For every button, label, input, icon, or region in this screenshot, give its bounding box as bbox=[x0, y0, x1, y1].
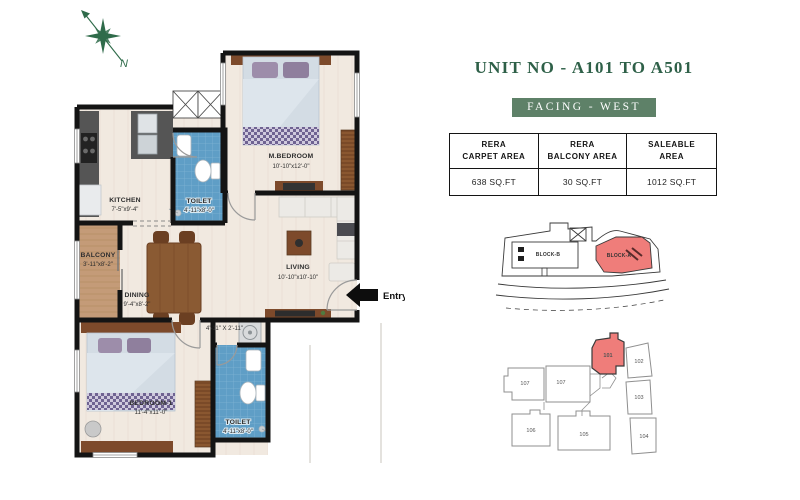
room-dims-balcony: 3'-11"x8'-2" bbox=[83, 262, 113, 268]
unit-107-mid-label: 107 bbox=[556, 380, 565, 386]
room-label-toilet-1: TOILET bbox=[186, 198, 212, 205]
room-label-toilet-2: TOILET bbox=[225, 419, 251, 426]
wardrobe-icon bbox=[195, 381, 212, 447]
facing-badge-wrap: FACING - WEST bbox=[448, 98, 720, 117]
table-header-rera-carpet: RERA CARPET AREA bbox=[450, 134, 539, 169]
table-value-balcony-area: 30 SQ.FT bbox=[539, 169, 628, 195]
block-a-label: BLOCK-A bbox=[607, 253, 632, 259]
room-dims-toilet-2: 4'-11"x8'-0" bbox=[223, 429, 253, 435]
wc-icon bbox=[240, 382, 256, 404]
shaft-icon bbox=[173, 91, 223, 118]
floor-plan: KITCHEN 7'-5"x9'-4" TOILET 4'-11"x8'-0" … bbox=[65, 45, 405, 465]
area-table: RERA CARPET AREA RERA BALCONY AREA SALEA… bbox=[449, 133, 717, 196]
unit-title: UNIT NO - A101 TO A501 bbox=[448, 58, 720, 78]
table-header-saleable: SALEABLE AREA bbox=[627, 134, 716, 169]
room-dims-kitchen: 7'-5"x9'-4" bbox=[112, 207, 139, 213]
dining-furniture bbox=[147, 231, 201, 325]
room-label-bedroom-1: BEDROOM-1 bbox=[129, 400, 172, 407]
unit-103-label: 103 bbox=[634, 395, 643, 401]
fridge-icon bbox=[79, 185, 101, 215]
room-dims-master-bedroom: 10'-10"x12'-0" bbox=[273, 164, 310, 170]
key-plan: 101 102 103 104 105 106 107 107 bbox=[498, 326, 678, 462]
unit-101-label: 101 bbox=[603, 353, 612, 359]
sink-icon bbox=[138, 114, 157, 133]
unit-105-shape bbox=[558, 411, 610, 450]
room-label-master-bedroom: M.BEDROOM bbox=[269, 153, 314, 160]
site-map: BLOCK-B BLOCK-A bbox=[492, 216, 672, 320]
washbasin-icon bbox=[246, 350, 261, 371]
room-dims-living: 10'-10"x10'-10" bbox=[278, 275, 318, 281]
passage-dims: 4'-11" X 2'-11" bbox=[206, 326, 243, 332]
unit-107-left-label: 107 bbox=[520, 381, 529, 387]
unit-106-label: 106 bbox=[526, 428, 535, 434]
room-dims-dining: 9'-4"x8'-2" bbox=[124, 302, 151, 308]
room-dims-toilet-1: 4'-11"x8'-0" bbox=[184, 208, 214, 214]
planter-icon bbox=[85, 421, 101, 437]
unit-107-mid-shape bbox=[546, 366, 590, 402]
wc-icon bbox=[195, 160, 211, 182]
table-header-rera-balcony: RERA BALCONY AREA bbox=[539, 134, 628, 169]
floor-plan-page: N bbox=[0, 0, 800, 500]
facing-badge: FACING - WEST bbox=[512, 98, 656, 117]
block-b-label: BLOCK-B bbox=[536, 252, 561, 258]
table-value-carpet-area: 638 SQ.FT bbox=[450, 169, 539, 195]
unit-104-label: 104 bbox=[639, 434, 648, 440]
boundary-lines bbox=[310, 323, 381, 463]
table-value-saleable-area: 1012 SQ.FT bbox=[627, 169, 716, 195]
entry-label: Entry bbox=[383, 291, 405, 302]
balcony-floor bbox=[77, 223, 120, 320]
room-label-kitchen: KITCHEN bbox=[109, 197, 141, 204]
stove-icon bbox=[81, 133, 97, 163]
room-label-dining: DINING bbox=[125, 292, 150, 299]
room-label-living: LIVING bbox=[286, 264, 310, 271]
unit-105-label: 105 bbox=[579, 432, 588, 438]
room-label-balcony: BALCONY bbox=[80, 252, 115, 259]
room-dims-bedroom-1: 11'-4"x11'-0" bbox=[135, 410, 168, 416]
unit-102-label: 102 bbox=[634, 359, 643, 365]
